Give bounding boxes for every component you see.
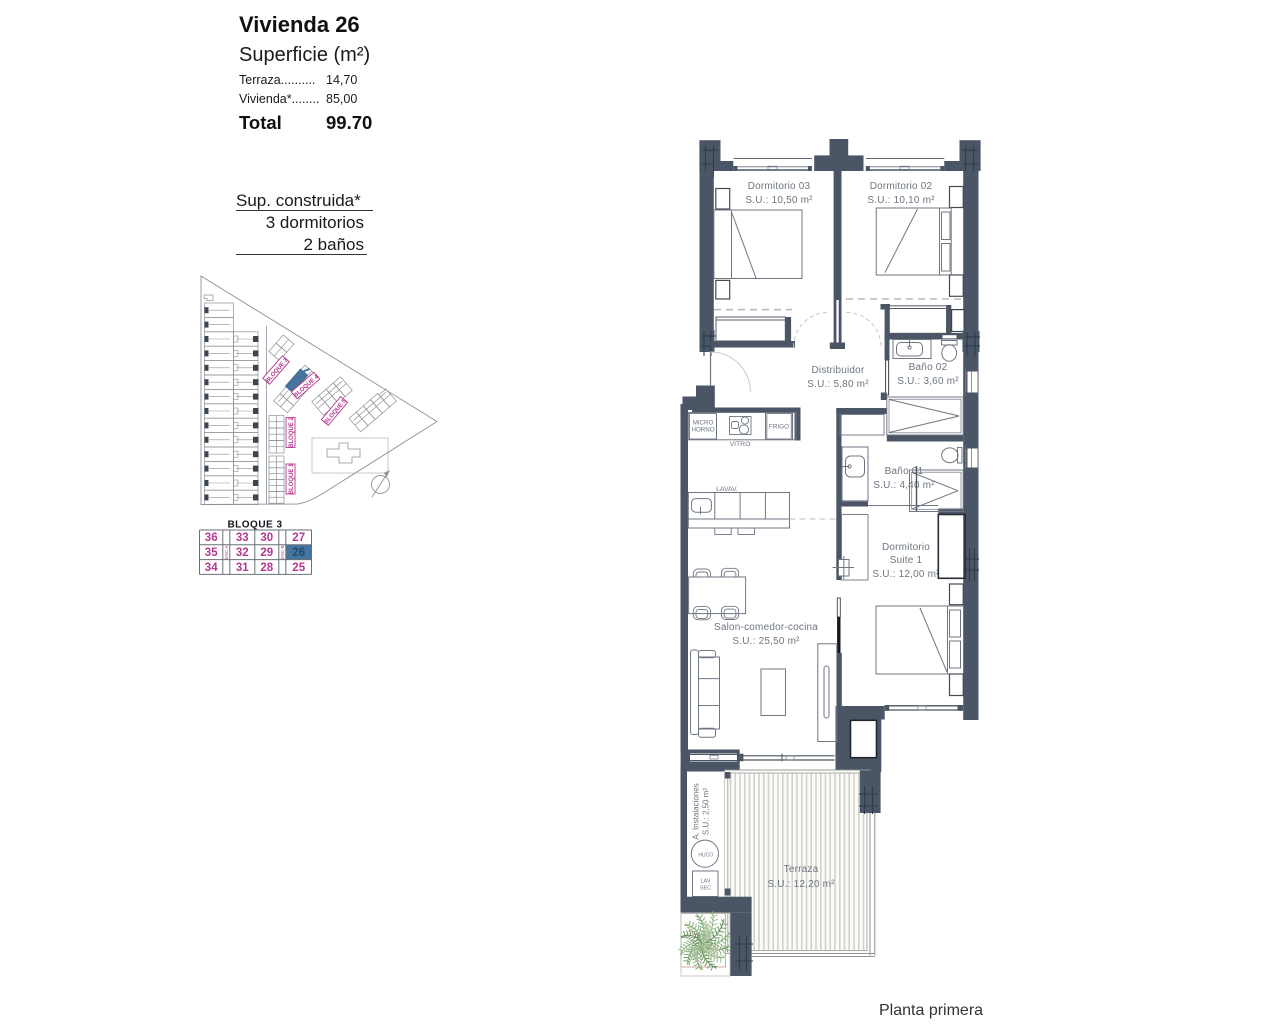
svg-text:Planta primera: Planta primera [879,1002,983,1019]
svg-text:Dormitorio 03: Dormitorio 03 [748,181,811,192]
svg-text:S.U.: 10,10 m²: S.U.: 10,10 m² [867,195,935,206]
svg-text:HUCO: HUCO [698,853,713,859]
svg-text:SEC: SEC [700,886,711,892]
svg-text:29: 29 [260,547,273,559]
svg-text:Dormitorio 02: Dormitorio 02 [870,181,933,192]
svg-text:VITRO: VITRO [730,441,751,448]
svg-text:25: 25 [292,562,305,574]
svg-text:Vivienda*........: Vivienda*........ [239,92,319,106]
svg-text:LAVAV.: LAVAV. [716,486,738,493]
svg-text:S.U.: 10,50 m²: S.U.: 10,50 m² [745,195,813,206]
svg-text:Baño 02: Baño 02 [909,362,948,373]
svg-text:34: 34 [205,562,218,574]
svg-text:26: 26 [292,547,305,559]
svg-text:S.U.: 4,40 m²: S.U.: 4,40 m² [873,480,935,491]
svg-text:MICRO: MICRO [693,420,714,427]
svg-text:31: 31 [236,562,249,574]
svg-text:Distribuidor: Distribuidor [812,365,865,376]
svg-text:S.U.: 5,80 m²: S.U.: 5,80 m² [807,379,869,390]
svg-text:Terraza: Terraza [784,864,819,875]
svg-text:HORNO: HORNO [691,427,714,434]
svg-text:36: 36 [205,532,218,544]
svg-text:30: 30 [260,532,273,544]
svg-text:35: 35 [205,547,218,559]
svg-text:33: 33 [236,532,249,544]
svg-text:Salon-comedor-cocina: Salon-comedor-cocina [714,622,818,633]
svg-text:LAV: LAV [701,879,711,885]
svg-text:28: 28 [260,562,273,574]
svg-text:S.U.: 12,20 m²: S.U.: 12,20 m² [767,879,835,890]
svg-text:A. Instalaciones: A. Instalaciones [692,783,701,839]
svg-text:Dormitorio: Dormitorio [882,542,930,553]
svg-text:S.U.: 12,00 m²: S.U.: 12,00 m² [872,569,940,580]
svg-text:BLOQUE 2: BLOQUE 2 [289,417,295,448]
svg-text:Total: Total [239,112,282,133]
svg-text:S.U.: 2,50 m²: S.U.: 2,50 m² [702,788,711,835]
svg-text:14,70: 14,70 [326,73,357,87]
svg-text:Terraza..........: Terraza.......... [239,73,315,87]
svg-text:BLOQUE 3: BLOQUE 3 [227,520,282,531]
svg-text:FRIGO: FRIGO [769,424,789,431]
svg-text:ESC-B: ESC-B [280,545,285,559]
svg-text:ESC-A: ESC-A [224,545,229,559]
svg-text:Baño 01: Baño 01 [885,466,924,477]
svg-text:32: 32 [236,547,249,559]
svg-text:2 baños: 2 baños [304,235,365,254]
svg-text:Superficie (m²): Superficie (m²) [239,44,370,66]
svg-text:S.U.: 25,50 m²: S.U.: 25,50 m² [732,636,800,647]
svg-text:S.U.: 3,60 m²: S.U.: 3,60 m² [897,376,959,387]
svg-text:99.70: 99.70 [326,112,372,133]
svg-text:3 dormitorios: 3 dormitorios [266,213,364,232]
svg-text:BLOQUE 1: BLOQUE 1 [289,463,295,494]
svg-text:85,00: 85,00 [326,92,357,106]
svg-text:Sup. construida*: Sup. construida* [236,191,361,210]
svg-text:Suite 1: Suite 1 [890,555,923,566]
svg-text:27: 27 [292,532,305,544]
svg-text:Vivienda 26: Vivienda 26 [239,12,360,37]
